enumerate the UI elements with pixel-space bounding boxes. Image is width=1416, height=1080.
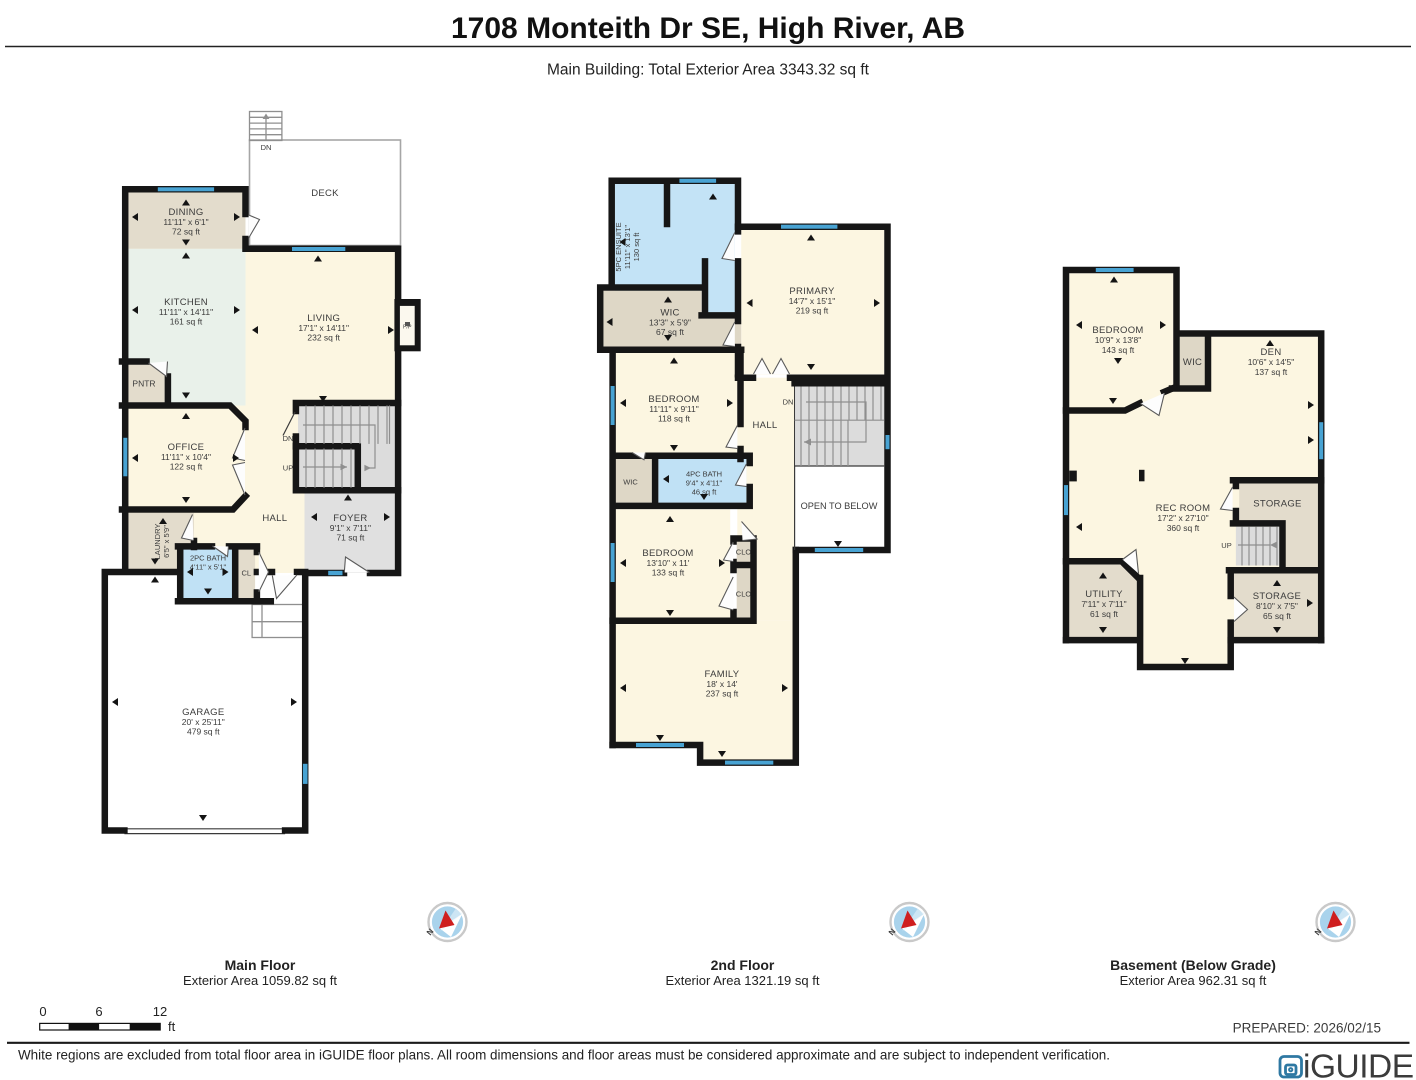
svg-text:14'7" x 15'1": 14'7" x 15'1" xyxy=(789,296,836,306)
svg-text:72 sq ft: 72 sq ft xyxy=(172,227,201,237)
svg-text:10'9" x 13'8": 10'9" x 13'8" xyxy=(1095,335,1142,345)
svg-text:Exterior Area 962.31 sq ft: Exterior Area 962.31 sq ft xyxy=(1120,973,1267,988)
svg-text:Main Floor: Main Floor xyxy=(225,957,296,973)
svg-text:11'11" x 10'4": 11'11" x 10'4" xyxy=(161,452,211,462)
svg-text:18' x 14': 18' x 14' xyxy=(706,679,738,689)
svg-text:479 sq ft: 479 sq ft xyxy=(187,727,220,737)
svg-text:DN: DN xyxy=(261,143,272,152)
svg-text:STORAGE: STORAGE xyxy=(1253,499,1301,510)
svg-text:PREPARED: 2026/02/15: PREPARED: 2026/02/15 xyxy=(1233,1021,1381,1036)
svg-text:65 sq ft: 65 sq ft xyxy=(1263,611,1292,621)
svg-text:ft: ft xyxy=(168,1019,176,1034)
svg-text:71 sq ft: 71 sq ft xyxy=(336,533,365,543)
svg-text:iGUIDE: iGUIDE xyxy=(1303,1049,1414,1080)
svg-text:232 sq ft: 232 sq ft xyxy=(307,333,340,343)
svg-text:5PC ENSUITE: 5PC ENSUITE xyxy=(614,222,623,271)
svg-text:10'6" x 14'5": 10'6" x 14'5" xyxy=(1248,357,1295,367)
svg-text:PNTR: PNTR xyxy=(132,379,155,389)
svg-text:DN: DN xyxy=(283,434,294,443)
svg-text:0: 0 xyxy=(39,1004,46,1019)
svg-text:2nd Floor: 2nd Floor xyxy=(711,957,775,973)
svg-text:Main Building: Total Exterior: Main Building: Total Exterior Area 3343.… xyxy=(547,62,870,79)
svg-text:CLO: CLO xyxy=(736,548,752,557)
svg-text:4'11" x 5'1": 4'11" x 5'1" xyxy=(190,563,227,572)
svg-text:2PC BATH: 2PC BATH xyxy=(190,554,226,563)
svg-text:DECK: DECK xyxy=(311,188,339,199)
svg-text:OPEN TO BELOW: OPEN TO BELOW xyxy=(801,501,878,511)
svg-text:11'11" x 6'1": 11'11" x 6'1" xyxy=(163,217,208,227)
svg-text:161 sq ft: 161 sq ft xyxy=(170,317,203,327)
svg-text:Basement (Below Grade): Basement (Below Grade) xyxy=(1110,957,1276,973)
svg-text:9'1" x 7'11": 9'1" x 7'11" xyxy=(330,523,371,533)
svg-text:1708 Monteith Dr SE, High Rive: 1708 Monteith Dr SE, High River, AB xyxy=(451,12,965,45)
svg-text:237 sq ft: 237 sq ft xyxy=(706,689,739,699)
svg-text:130 sq ft: 130 sq ft xyxy=(632,232,641,262)
svg-text:6: 6 xyxy=(95,1004,102,1019)
svg-text:LAUNDRY: LAUNDRY xyxy=(153,524,162,560)
svg-text:61 sq ft: 61 sq ft xyxy=(1090,609,1119,619)
svg-text:17'2" x 27'10": 17'2" x 27'10" xyxy=(1157,513,1208,523)
svg-text:UP: UP xyxy=(283,464,293,473)
svg-text:219 sq ft: 219 sq ft xyxy=(796,306,829,316)
svg-text:9'4" x 4'11": 9'4" x 4'11" xyxy=(686,479,723,488)
svg-text:122 sq ft: 122 sq ft xyxy=(170,462,203,472)
svg-text:143 sq ft: 143 sq ft xyxy=(1102,345,1135,355)
svg-text:360 sq ft: 360 sq ft xyxy=(1167,523,1200,533)
svg-text:13'3" x 5'9": 13'3" x 5'9" xyxy=(649,318,691,328)
svg-text:UP: UP xyxy=(1221,541,1231,550)
svg-text:137 sq ft: 137 sq ft xyxy=(1255,367,1288,377)
svg-text:White regions are excluded fro: White regions are excluded from total fl… xyxy=(18,1048,1110,1063)
svg-text:118 sq ft: 118 sq ft xyxy=(658,414,691,424)
svg-text:13'10" x 11': 13'10" x 11' xyxy=(647,558,690,568)
svg-text:8'10" x 7'5": 8'10" x 7'5" xyxy=(1256,601,1298,611)
svg-text:4PC BATH: 4PC BATH xyxy=(686,470,722,479)
svg-text:12: 12 xyxy=(153,1004,167,1019)
svg-text:6'5" x 5'9": 6'5" x 5'9" xyxy=(162,525,171,558)
svg-text:11'11" x 14'11": 11'11" x 14'11" xyxy=(159,307,213,317)
svg-text:HALL: HALL xyxy=(753,420,778,431)
svg-text:CL: CL xyxy=(242,569,252,578)
svg-text:WIC: WIC xyxy=(623,478,638,487)
svg-text:Exterior Area 1059.82 sq ft: Exterior Area 1059.82 sq ft xyxy=(183,973,337,988)
svg-text:7'11" x 7'11": 7'11" x 7'11" xyxy=(1081,599,1126,609)
svg-text:DN: DN xyxy=(783,398,794,407)
svg-text:133 sq ft: 133 sq ft xyxy=(652,568,685,578)
svg-text:20' x 25'11": 20' x 25'11" xyxy=(182,717,225,727)
svg-text:17'1" x 14'11": 17'1" x 14'11" xyxy=(298,323,349,333)
svg-text:CLO: CLO xyxy=(736,590,752,599)
svg-text:11'11" x 13'1": 11'11" x 13'1" xyxy=(623,225,632,270)
svg-text:WIC: WIC xyxy=(1183,357,1202,368)
svg-text:Exterior Area 1321.19 sq ft: Exterior Area 1321.19 sq ft xyxy=(666,973,820,988)
svg-text:HALL: HALL xyxy=(262,513,287,524)
svg-text:11'11" x 9'11": 11'11" x 9'11" xyxy=(649,404,698,414)
